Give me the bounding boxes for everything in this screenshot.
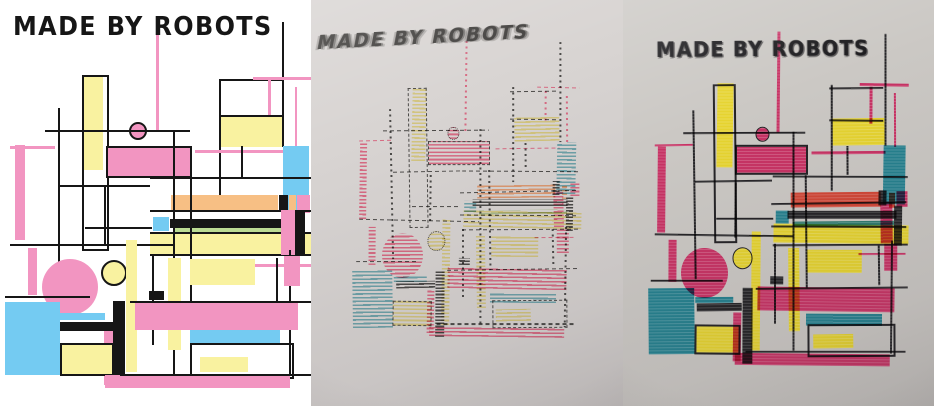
art-shape-rect-yellow (491, 236, 539, 257)
art-shape-rect-pink (735, 352, 890, 365)
art-shape-rect-pink (447, 266, 566, 290)
art-shape-rect-black (458, 258, 469, 265)
art-shape-rect-pink (553, 191, 564, 227)
art-shape-rect-black (396, 280, 435, 288)
art-shape-rect-black (510, 91, 557, 93)
art-shape-rect-black (429, 175, 432, 224)
triptych-artwork: MADE BY ROBOTS MADE BY ROBOTS MADE BY RO… (0, 0, 934, 406)
art-shape-rect-blue (153, 217, 169, 231)
art-shape-circle-yellow (101, 260, 127, 286)
art-shape-rect-yellow (392, 301, 431, 327)
art-shape-rect-pink (735, 145, 808, 174)
art-layer-digital (0, 0, 311, 406)
art-shape-rect-yellow (813, 334, 853, 348)
art-shape-rect-black (241, 146, 243, 178)
art-shape-rect-pink (135, 303, 298, 330)
art-shape-rect-black (566, 196, 574, 231)
art-shape-rect-blue (352, 269, 393, 328)
art-shape-rect-yellow (412, 87, 427, 162)
art-shape-rect-yellow (832, 118, 884, 146)
art-shape-rect-black (104, 185, 106, 246)
art-shape-rect-pink (557, 229, 569, 253)
art-layer-sketch (311, 0, 623, 406)
art-shape-rect-black (276, 258, 278, 302)
art-shape-rect-pink (105, 375, 290, 388)
art-shape-rect-yellow (716, 84, 733, 168)
art-shape-rect-black (683, 132, 805, 135)
art-shape-rect-black (60, 322, 113, 331)
art-shape-rect-pink (369, 227, 376, 265)
art-shape-rect-yellow (695, 324, 741, 355)
art-shape-rect-yellow (496, 308, 531, 321)
art-shape-rect-black (10, 244, 175, 246)
art-shape-rect-pink (359, 140, 392, 142)
artwork-title: MADE BY ROBOTS (13, 13, 273, 42)
art-shape-rect-pink (535, 237, 576, 239)
artwork-title: MADE BY ROBOTS (656, 37, 870, 62)
art-shape-rect-pink (758, 286, 895, 312)
art-shape-rect-black (552, 229, 555, 264)
art-shape-rect-black (282, 22, 284, 147)
art-shape-rect-pink (429, 326, 564, 338)
art-shape-rect-black (894, 205, 903, 245)
art-shape-rect-black (697, 303, 742, 312)
art-shape-rect-yellow (806, 250, 861, 274)
art-shape-rect-black (436, 323, 575, 324)
art-shape-rect-pink (295, 87, 297, 147)
art-shape-rect-black (829, 119, 883, 122)
art-shape-rect-pink (359, 143, 367, 219)
art-shape-rect-black (383, 130, 489, 132)
art-shape-rect-black (745, 350, 905, 352)
art-shape-rect-yellow (60, 343, 114, 376)
art-shape-rect-pink (880, 202, 892, 243)
art-shape-rect-black (113, 301, 125, 385)
art-shape-rect-black (149, 291, 164, 300)
panel-digital-design: MADE BY ROBOTS (0, 0, 311, 406)
art-shape-circle-yellow (732, 247, 753, 269)
art-shape-rect-yellow (220, 117, 282, 147)
art-shape-circle-pink (448, 126, 460, 139)
art-shape-rect-blue (648, 288, 695, 354)
art-shape-rect-pink (253, 77, 311, 80)
art-shape-rect-black (295, 211, 305, 255)
art-shape-rect-yellow (190, 259, 255, 285)
art-shape-rect-pink (496, 147, 560, 149)
art-shape-rect-pink (195, 150, 283, 153)
art-shape-rect-yellow (200, 357, 248, 372)
art-shape-rect-pink (859, 252, 906, 254)
art-shape-rect-black (5, 296, 90, 298)
art-shape-rect-pink (566, 96, 568, 144)
art-shape-rect-yellow (84, 77, 103, 170)
art-shape-rect-pink (537, 86, 579, 88)
art-shape-rect-black (770, 276, 783, 284)
art-shape-rect-pink (255, 264, 311, 267)
art-shape-rect-pink (657, 146, 666, 232)
art-shape-rect-pink (668, 240, 676, 282)
art-shape-rect-pink (28, 248, 37, 295)
art-shape-rect-black (524, 143, 526, 169)
art-shape-rect-black (695, 179, 772, 182)
art-shape-rect-black (878, 245, 881, 285)
art-shape-rect-black (651, 280, 722, 282)
art-shape-rect-black (512, 87, 514, 181)
art-shape-rect-black (219, 115, 283, 117)
art-shape-rect-black (219, 79, 221, 197)
art-shape-rect-black (829, 87, 883, 90)
art-shape-rect-blue (60, 313, 105, 320)
panel-plotter-sketch-photo: MADE BY ROBOTS (311, 0, 623, 406)
art-shape-rect-pink (15, 145, 25, 240)
panel-marker-plot-photo: MADE BY ROBOTS (623, 0, 934, 406)
art-shape-rect-black (356, 261, 418, 262)
art-shape-rect-black (85, 227, 152, 229)
art-shape-rect-pink (268, 78, 271, 119)
art-shape-rect-black (120, 374, 311, 376)
art-shape-rect-pink (284, 256, 300, 286)
art-shape-rect-pink (897, 190, 908, 206)
art-shape-rect-black (45, 130, 190, 132)
art-shape-rect-blue (5, 302, 60, 375)
art-shape-rect-black (884, 34, 886, 147)
art-shape-rect-pink (894, 93, 896, 147)
art-shape-rect-pink (281, 210, 295, 255)
art-shape-rect-orange (790, 191, 880, 207)
art-shape-rect-pink (464, 41, 467, 131)
art-shape-rect-pink (106, 146, 192, 178)
art-shape-rect-black (412, 206, 461, 207)
art-shape-rect-blue (190, 330, 280, 343)
art-shape-rect-black (717, 218, 773, 220)
art-shape-rect-pink (884, 244, 897, 271)
